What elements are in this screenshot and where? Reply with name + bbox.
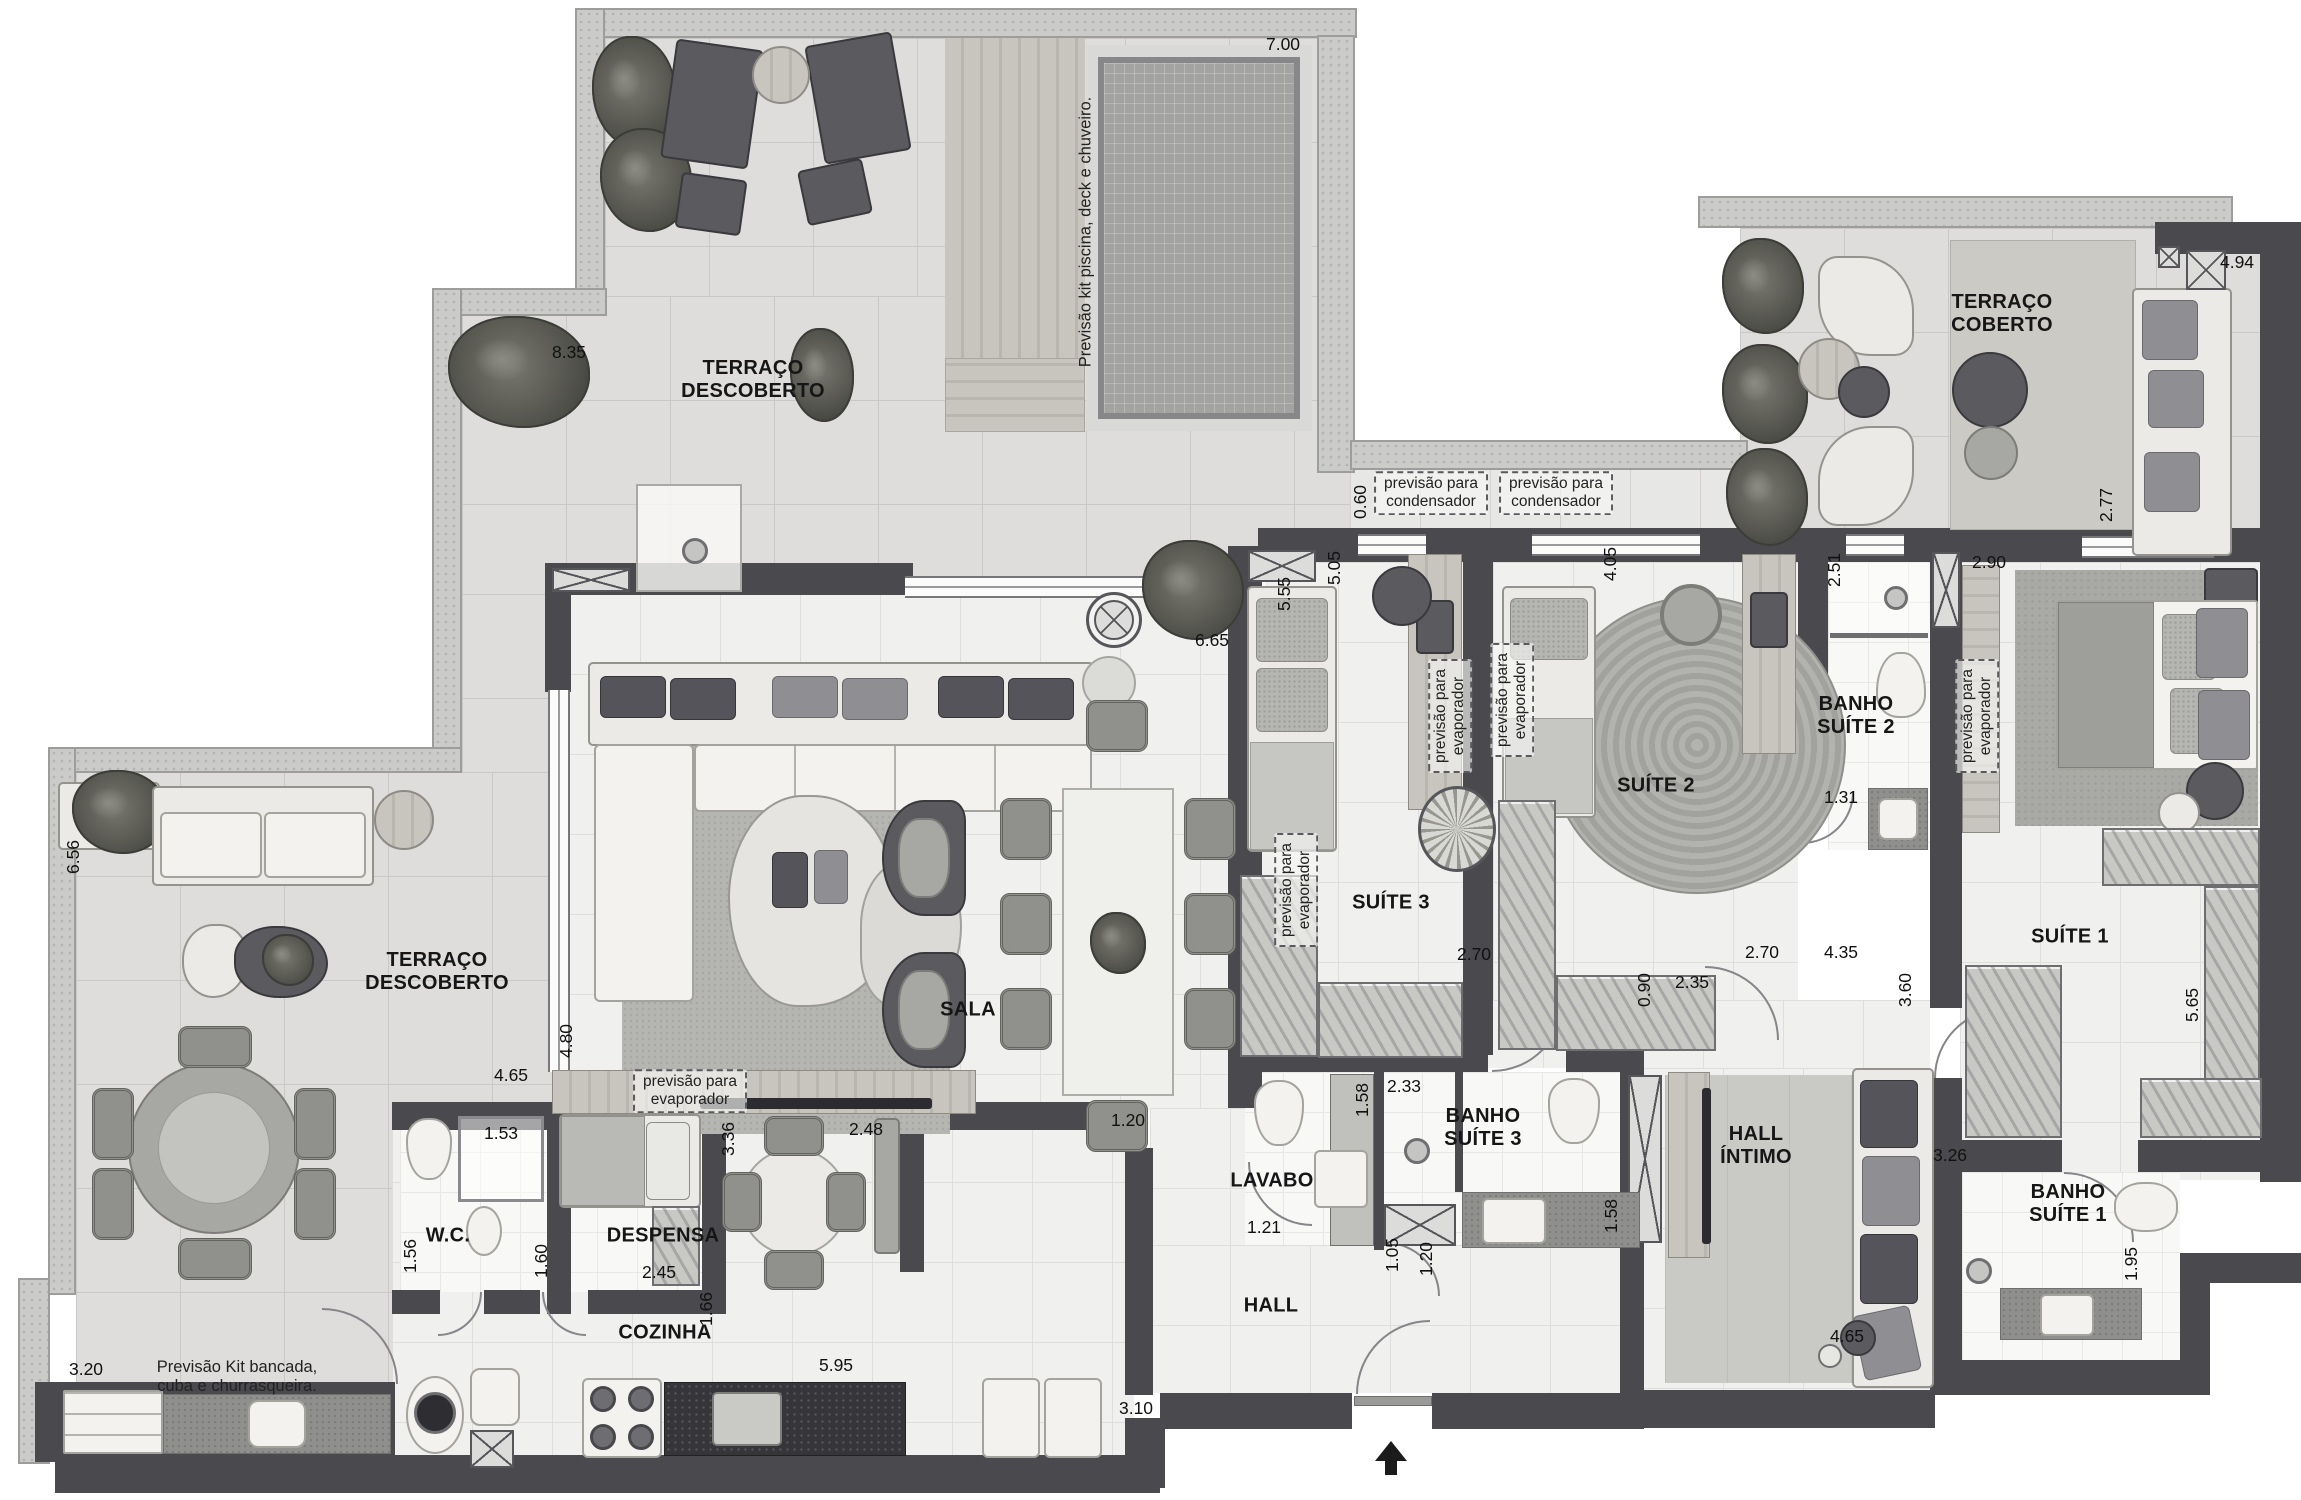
- dimension-label: 1.53: [484, 1123, 518, 1143]
- dimension-label: 1.60: [531, 1244, 551, 1278]
- dimension-label: 1.21: [1247, 1217, 1281, 1237]
- dimension-label: 2.33: [1387, 1076, 1421, 1096]
- dimension-label: 1.58: [1352, 1083, 1372, 1117]
- annotation-evaporador-suite3: previsão para evaporador: [1428, 659, 1472, 773]
- dimension-label: 0.60: [1350, 485, 1370, 519]
- room-label-hall: HALL: [1244, 1295, 1299, 1318]
- dimension-label: 6.65: [1195, 630, 1229, 650]
- dimension-label: 2.35: [1675, 972, 1709, 992]
- annotation-evaporador-suite2: previsão para evaporador: [1490, 643, 1534, 757]
- room-label-banho-suite-1: BANHO SUÍTE 1: [2029, 1181, 2107, 1227]
- annotation-condensador-1: previsão para condensador: [1374, 471, 1488, 515]
- dimension-label: 3.26: [1933, 1145, 1967, 1165]
- room-label-banho-suite-3: BANHO SUÍTE 3: [1444, 1105, 1522, 1151]
- dimension-label: 4.35: [1824, 942, 1858, 962]
- dimension-label: 2.45: [642, 1262, 676, 1282]
- annotation-evaporador-jantar: previsão para evaporador: [1274, 833, 1318, 947]
- dimension-label: 3.20: [69, 1359, 103, 1379]
- dimension-label: 4.80: [556, 1024, 576, 1058]
- dimension-label: 2.90: [1972, 552, 2006, 572]
- room-label-sala: SALA: [940, 999, 996, 1022]
- dimension-label: 4.65: [494, 1065, 528, 1085]
- room-label-suite-1: SUÍTE 1: [2031, 926, 2109, 949]
- dimension-label: 2.51: [1824, 553, 1844, 587]
- room-label-lavabo: LAVABO: [1230, 1170, 1313, 1193]
- dimension-label: 5.55: [1274, 577, 1294, 611]
- dimension-label: 3.36: [718, 1122, 738, 1156]
- room-label-hall-intimo: HALL ÍNTIMO: [1720, 1123, 1792, 1169]
- annotation-evaporador-sala: previsão para evaporador: [633, 1069, 747, 1113]
- dimension-label: 4.65: [1830, 1326, 1864, 1346]
- dimension-label: 1.58: [1601, 1199, 1621, 1233]
- room-label-terraco-descoberto-left: TERRAÇO DESCOBERTO: [365, 949, 509, 995]
- note-churrasqueira: Previsão Kit bancada, cuba e churrasquei…: [157, 1358, 318, 1396]
- room-label-terraco-descoberto-top: TERRAÇO DESCOBERTO: [681, 357, 825, 403]
- floorplan: TERRAÇO DESCOBERTOTERRAÇO COBERTOTERRAÇO…: [0, 0, 2301, 1500]
- dimension-label: 5.05: [1324, 551, 1344, 585]
- dimension-label: 1.95: [2121, 1247, 2141, 1281]
- room-label-despensa: DESPENSA: [607, 1225, 719, 1248]
- note-piscina: Previsão kit piscina, deck e chuveiro.: [1077, 97, 1096, 368]
- room-label-banho-suite-2: BANHO SUÍTE 2: [1817, 693, 1895, 739]
- dimension-label: 4.05: [1600, 547, 1620, 581]
- dimension-label: 4.94: [2220, 252, 2254, 272]
- dimension-label: 0.90: [1634, 973, 1654, 1007]
- room-label-suite-2: SUÍTE 2: [1617, 775, 1695, 798]
- dimension-label: 2.77: [2096, 488, 2116, 522]
- dimension-label: 8.35: [552, 342, 586, 362]
- dimension-label: 3.60: [1895, 973, 1915, 1007]
- dimension-label: 1.20: [1111, 1110, 1145, 1130]
- dimension-label: 1.66: [696, 1292, 716, 1326]
- annotation-evaporador-suite1: previsão para evaporador: [1955, 659, 1999, 773]
- dimension-label: 5.95: [819, 1355, 853, 1375]
- dimension-label: 1.05: [1382, 1238, 1402, 1272]
- room-label-wc: W.C.: [426, 1225, 471, 1248]
- dimension-label: 2.48: [849, 1119, 883, 1139]
- dimension-label: 2.70: [1745, 942, 1779, 962]
- dimension-label: 3.10: [1119, 1398, 1153, 1418]
- labels-layer: TERRAÇO DESCOBERTOTERRAÇO COBERTOTERRAÇO…: [0, 0, 2301, 1500]
- dimension-label: 5.65: [2182, 988, 2202, 1022]
- dimension-label: 1.31: [1824, 787, 1858, 807]
- dimension-label: 2.70: [1457, 944, 1491, 964]
- room-label-suite-3: SUÍTE 3: [1352, 892, 1430, 915]
- dimension-label: 1.56: [400, 1239, 420, 1273]
- dimension-label: 7.00: [1266, 34, 1300, 54]
- annotation-condensador-2: previsão para condensador: [1499, 471, 1613, 515]
- dimension-label: 6.56: [63, 840, 83, 874]
- room-label-terraco-coberto: TERRAÇO COBERTO: [1951, 291, 2053, 337]
- dimension-label: 1.20: [1416, 1242, 1436, 1276]
